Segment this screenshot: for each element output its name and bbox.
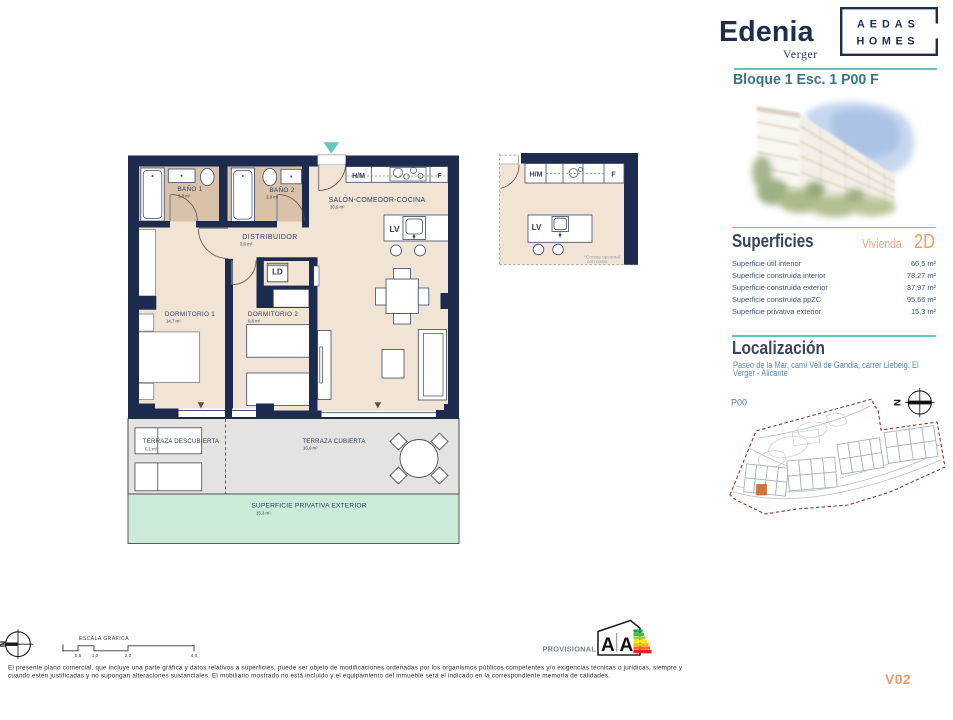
svg-text:AEDAS: AEDAS <box>857 19 920 31</box>
svg-text:LV: LV <box>389 224 400 234</box>
svg-text:2,0: 2,0 <box>125 653 132 658</box>
svg-text:HOMES: HOMES <box>856 36 919 48</box>
svg-text:N: N <box>0 641 8 648</box>
svg-text:con coste: con coste <box>587 259 608 265</box>
svg-text:LD: LD <box>272 268 283 277</box>
svg-text:1,0: 1,0 <box>92 653 99 658</box>
svg-text:14,7 m²: 14,7 m² <box>166 319 181 324</box>
svg-text:H/M: H/M <box>352 173 365 180</box>
svg-text:LV: LV <box>532 223 542 232</box>
svg-text:15,3 m²: 15,3 m² <box>256 511 271 516</box>
svg-text:9,6 m²: 9,6 m² <box>248 319 261 324</box>
svg-text:F: F <box>437 173 442 180</box>
svg-text:PROVISIONAL: PROVISIONAL <box>543 645 597 654</box>
svg-text:4,0: 4,0 <box>191 653 198 658</box>
svg-text:A: A <box>601 635 615 656</box>
svg-text:TERRAZA DESCUBIERTA: TERRAZA DESCUBIERTA <box>143 438 220 445</box>
svg-text:H/M: H/M <box>530 172 543 179</box>
svg-text:30,9 m²: 30,9 m² <box>330 205 345 210</box>
svg-text:BAÑO 2: BAÑO 2 <box>269 185 294 194</box>
svg-text:3,6 m²: 3,6 m² <box>240 242 253 247</box>
svg-text:N: N <box>893 399 904 406</box>
svg-text:3,8 m²: 3,8 m² <box>266 195 279 200</box>
svg-text:A: A <box>620 635 634 656</box>
svg-text:DORMITORIO 1: DORMITORIO 1 <box>165 311 215 318</box>
svg-text:0,5: 0,5 <box>75 653 82 658</box>
svg-text:P00: P00 <box>731 398 747 408</box>
svg-text:DORMITORIO 2: DORMITORIO 2 <box>248 311 298 318</box>
svg-text:SALÓN-COMEDOR-COCINA: SALÓN-COMEDOR-COCINA <box>329 195 426 204</box>
svg-text:V02: V02 <box>885 671 911 687</box>
svg-text:DISTRIBUIDOR: DISTRIBUIDOR <box>242 234 297 241</box>
svg-text:6,1 m²: 6,1 m² <box>145 447 158 452</box>
svg-text:TERRAZA CUBIERTA: TERRAZA CUBIERTA <box>302 438 366 445</box>
svg-text:F: F <box>611 172 616 179</box>
svg-text:SUPERFICIE PRIVATIVA EXTERIOR: SUPERFICIE PRIVATIVA EXTERIOR <box>251 503 366 510</box>
svg-text:El presente plano comercial, q: El presente plano comercial, que incluye… <box>8 664 683 671</box>
svg-text:16,0 m²: 16,0 m² <box>303 446 318 451</box>
svg-text:BAÑO 1: BAÑO 1 <box>177 184 202 193</box>
svg-text:3,8 m²: 3,8 m² <box>178 194 191 199</box>
svg-text:cuando estén justificadas y no: cuando estén justificadas y no supongan … <box>8 672 610 679</box>
svg-text:ESCALA GRÁFICA: ESCALA GRÁFICA <box>79 635 129 642</box>
